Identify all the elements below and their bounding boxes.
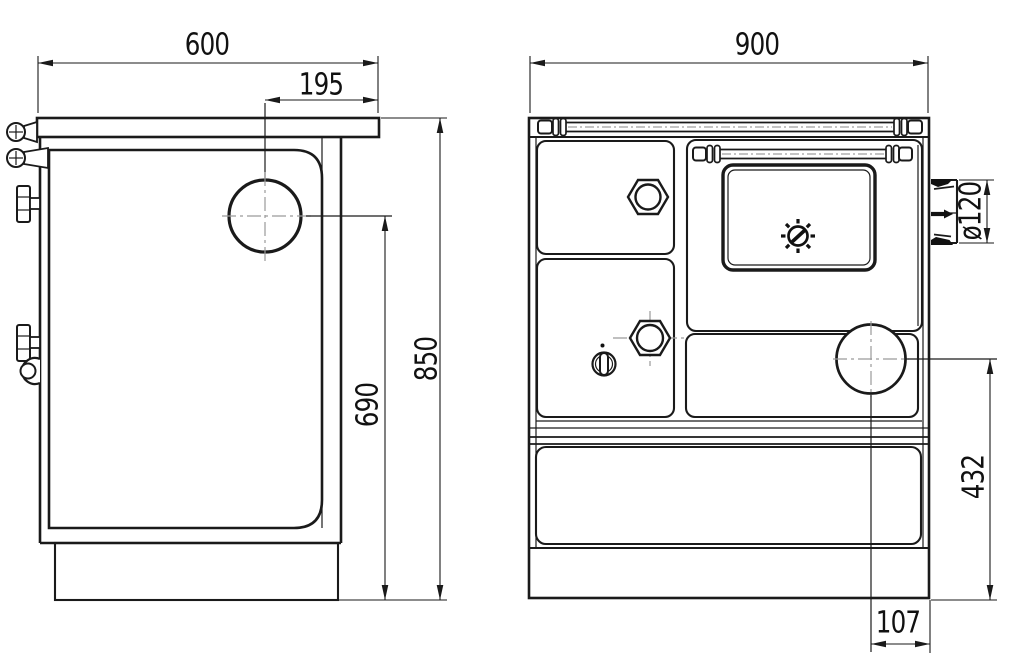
bottom-drawer	[536, 447, 921, 544]
gauge-tick	[807, 245, 810, 248]
arrowhead	[38, 60, 53, 67]
dim-850-label: 850	[410, 337, 444, 381]
ash-door-knob	[613, 311, 688, 366]
dim-432: 432	[931, 359, 997, 600]
oven-window	[723, 165, 875, 270]
rail-end-cap	[899, 148, 912, 161]
arrowhead	[987, 585, 994, 600]
rail-collar	[707, 146, 713, 163]
thermometer-icon	[781, 219, 815, 253]
firebox-door-knob	[628, 180, 668, 214]
rail-end-cap	[908, 121, 922, 134]
arrowhead	[437, 118, 444, 133]
arrowhead	[437, 585, 444, 600]
door-t-handle-upper	[17, 186, 30, 222]
latch-roller	[21, 364, 36, 379]
dim-690-label: 690	[351, 383, 385, 427]
side-plinth	[55, 543, 338, 600]
rail-collar	[553, 119, 559, 136]
towel-rail	[538, 119, 922, 136]
oven-handle-rail	[693, 146, 912, 163]
rail-end-cap	[538, 121, 552, 134]
arrowhead	[915, 641, 930, 648]
arrowhead	[363, 60, 378, 67]
handle-stem	[30, 198, 40, 209]
dim-900-label: 900	[735, 28, 779, 62]
side-view: 600 195 850 690	[7, 28, 447, 600]
handle-stem	[30, 337, 40, 348]
dim-107-label: 107	[876, 606, 920, 640]
rail-collar	[561, 119, 567, 136]
gauge-needle	[793, 231, 805, 242]
dim-432-label: 432	[957, 455, 991, 499]
stove-dimension-drawing: 600 195 850 690	[0, 0, 1019, 665]
rail-ball-neck	[24, 148, 48, 168]
drawing-canvas: 600 195 850 690	[0, 0, 1019, 665]
knob-grip-bar	[600, 353, 608, 375]
stub-break-arrow	[944, 210, 953, 219]
rail-collar	[902, 119, 908, 136]
rail-end-cap	[693, 148, 706, 161]
gauge-tick	[786, 224, 789, 227]
side-countertop	[37, 118, 379, 137]
door-t-handle-lower	[17, 325, 30, 361]
stub-break-mark	[931, 237, 953, 245]
dim-107: 107	[871, 600, 930, 653]
hex-knob-center	[636, 185, 661, 210]
stub-break-mark	[934, 235, 951, 237]
dim-195: 195	[265, 68, 378, 103]
rail-collar	[886, 146, 892, 163]
stub-break-mark	[931, 179, 953, 187]
dim-195-label: 195	[299, 68, 343, 102]
dim-690: 690	[351, 216, 388, 600]
rail-collar	[894, 119, 900, 136]
arrowhead	[987, 359, 994, 374]
dim-600-label: 600	[185, 28, 229, 62]
arrowhead	[382, 585, 389, 600]
rail-collar	[715, 146, 721, 163]
gauge-tick	[786, 245, 789, 248]
arrowhead	[913, 60, 928, 67]
arrowhead	[871, 641, 886, 648]
gauge-tick	[807, 224, 810, 227]
hex-knob-center	[637, 325, 663, 351]
dim-900: 900	[530, 28, 928, 113]
dim-flue-diameter-label: ø120	[954, 182, 988, 241]
dim-flue-diameter: ø120	[954, 180, 994, 243]
side-handles	[7, 122, 48, 384]
stub-break-mark	[934, 187, 954, 190]
arrowhead	[363, 97, 378, 104]
air-control-knob	[593, 344, 616, 376]
arrowhead	[530, 60, 545, 67]
dim-850: 850	[338, 118, 447, 600]
front-view: 900 ø120 432 107	[529, 28, 997, 653]
arrowhead	[382, 216, 389, 231]
arrowhead	[265, 97, 280, 104]
knob-index-dot	[601, 344, 605, 348]
